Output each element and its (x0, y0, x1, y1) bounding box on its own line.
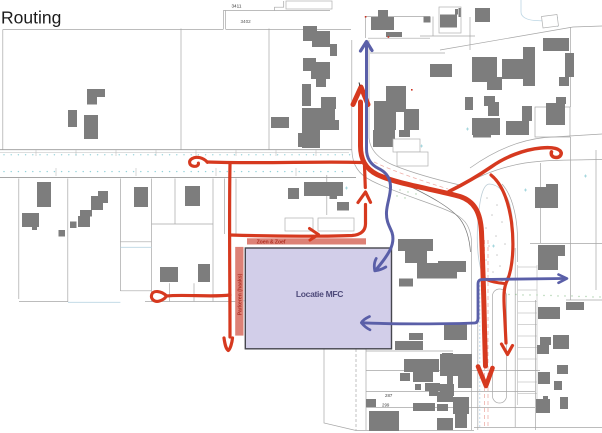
svg-text:Zoen & Zoef: Zoen & Zoef (257, 240, 286, 246)
svg-text:3402: 3402 (241, 19, 252, 24)
svg-text:Locatie MFC: Locatie MFC (296, 289, 343, 299)
svg-text:Routing: Routing (1, 8, 61, 28)
svg-text:Parkeren (haaks): Parkeren (haaks) (237, 273, 243, 315)
svg-text:3411: 3411 (232, 4, 242, 9)
svg-text:287: 287 (385, 393, 393, 398)
svg-text:299: 299 (382, 403, 390, 408)
